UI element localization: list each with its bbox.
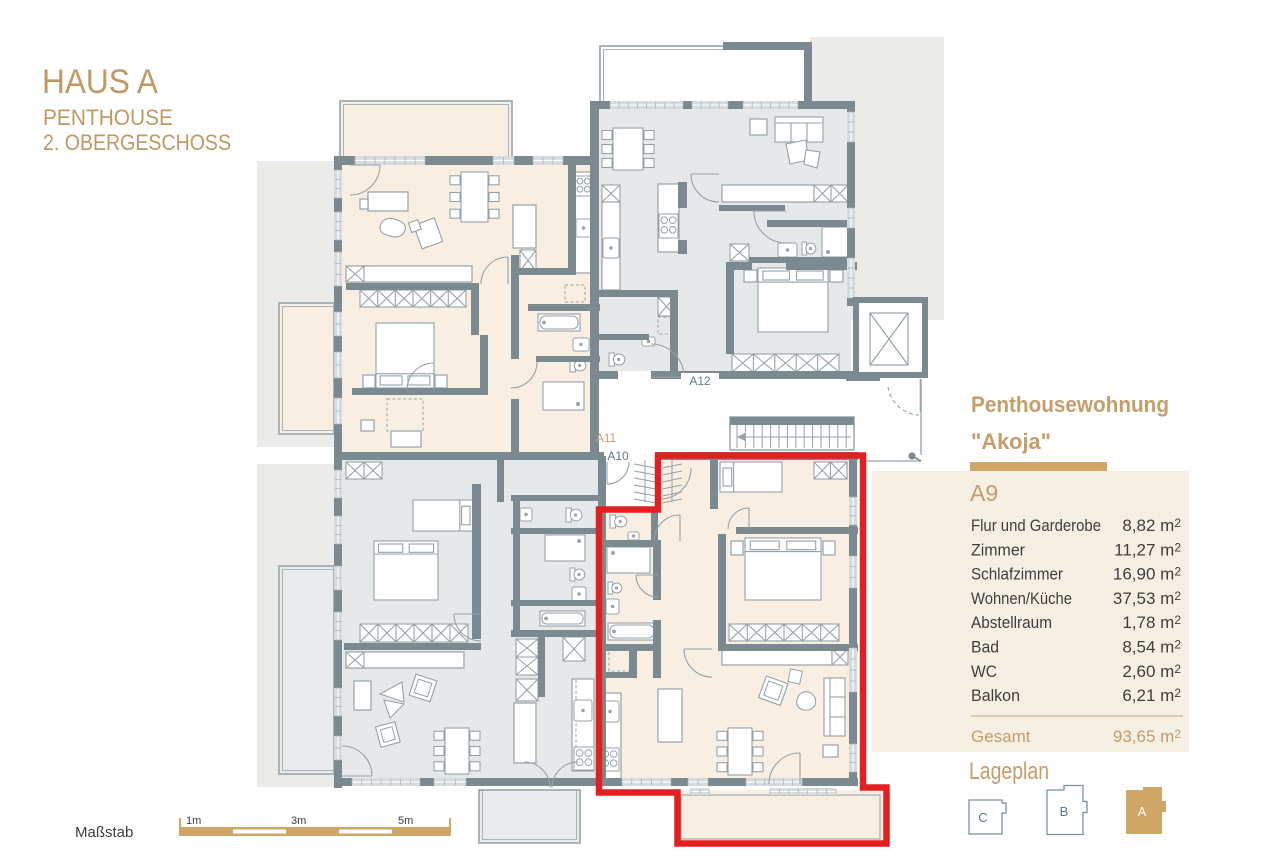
svg-text:Lageplan: Lageplan [969, 758, 1049, 785]
svg-text:WC: WC [971, 662, 997, 681]
svg-text:Schlafzimmer: Schlafzimmer [971, 565, 1063, 584]
svg-text:"Akoja": "Akoja" [971, 429, 1051, 454]
svg-text:3m: 3m [291, 815, 306, 827]
svg-text:5m: 5m [398, 815, 413, 827]
svg-text:8,82 m2: 8,82 m2 [1122, 516, 1181, 535]
svg-text:1m: 1m [186, 815, 201, 827]
svg-text:B: B [1060, 804, 1069, 819]
svg-text:Wohnen/Küche: Wohnen/Küche [971, 589, 1072, 608]
svg-text:37,53 m2: 37,53 m2 [1113, 589, 1181, 608]
svg-text:11,27 m2: 11,27 m2 [1114, 540, 1181, 559]
svg-text:Gesamt: Gesamt [971, 727, 1031, 746]
svg-text:A12: A12 [689, 374, 711, 388]
svg-text:Maßstab: Maßstab [75, 824, 133, 841]
svg-text:A11: A11 [596, 431, 617, 445]
svg-text:PENTHOUSE: PENTHOUSE [43, 105, 173, 130]
svg-text:2,60 m2: 2,60 m2 [1122, 662, 1181, 681]
svg-text:93,65 m2: 93,65 m2 [1113, 727, 1181, 746]
svg-text:C: C [978, 810, 987, 825]
svg-text:Abstellraum: Abstellraum [971, 613, 1052, 632]
svg-text:8,54 m2: 8,54 m2 [1122, 638, 1181, 657]
svg-text:16,90 m2: 16,90 m2 [1113, 565, 1181, 584]
svg-text:A10: A10 [607, 449, 629, 463]
svg-text:6,21 m2: 6,21 m2 [1122, 686, 1181, 705]
svg-text:A: A [1138, 804, 1147, 819]
svg-text:2. OBERGESCHOSS: 2. OBERGESCHOSS [43, 130, 231, 155]
svg-text:HAUS A: HAUS A [42, 63, 158, 101]
svg-text:A9: A9 [970, 480, 998, 506]
svg-text:Zimmer: Zimmer [971, 540, 1025, 559]
svg-text:Penthousewohnung: Penthousewohnung [971, 392, 1169, 417]
svg-text:Flur und Garderobe: Flur und Garderobe [971, 516, 1101, 535]
svg-text:1,78 m2: 1,78 m2 [1122, 613, 1181, 632]
svg-text:Bad: Bad [971, 638, 999, 657]
svg-text:Balkon: Balkon [971, 686, 1020, 705]
